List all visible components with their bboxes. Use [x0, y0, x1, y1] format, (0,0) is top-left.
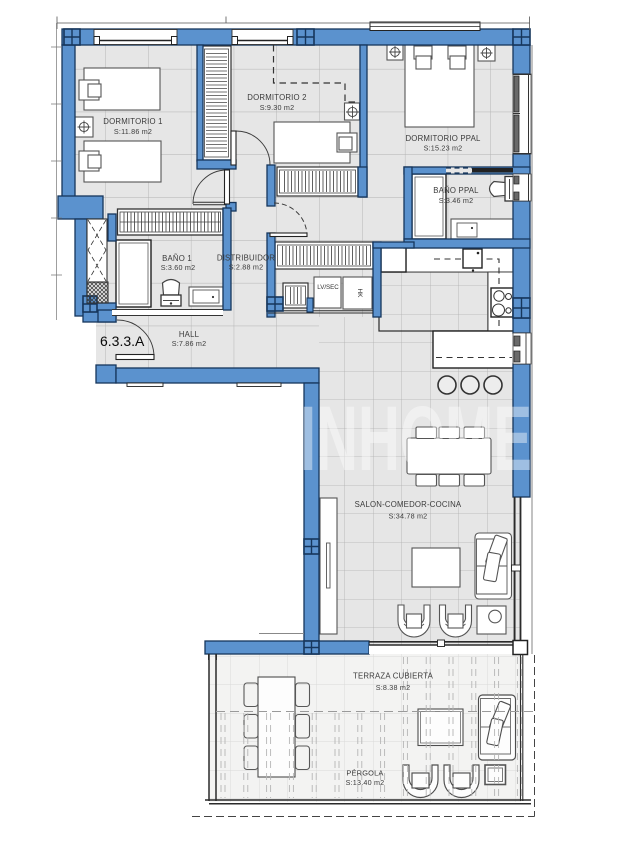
svg-text:S:15.23 m2: S:15.23 m2	[424, 144, 463, 153]
svg-text:HK: HK	[356, 288, 363, 298]
svg-text:BAÑO 1: BAÑO 1	[162, 254, 192, 263]
svg-text:SALON-COMEDOR-COCINA: SALON-COMEDOR-COCINA	[355, 500, 462, 509]
svg-text:BAÑO PPAL: BAÑO PPAL	[433, 186, 479, 195]
svg-text:LV/SEC: LV/SEC	[317, 284, 339, 291]
svg-text:S:8.38 m2: S:8.38 m2	[376, 683, 411, 692]
svg-text:INHOME: INHOME	[300, 388, 532, 490]
svg-text:DISTRIBUIDOR: DISTRIBUIDOR	[217, 254, 275, 263]
svg-text:S:7.86 m2: S:7.86 m2	[172, 339, 207, 348]
svg-text:S:3.60 m2: S:3.60 m2	[161, 263, 196, 272]
svg-text:HALL: HALL	[179, 330, 200, 339]
svg-text:S:3.46 m2: S:3.46 m2	[439, 196, 474, 205]
svg-text:S:13.40 m2: S:13.40 m2	[346, 778, 385, 787]
svg-text:TERRAZA CUBIERTA: TERRAZA CUBIERTA	[353, 672, 434, 681]
svg-text:DORMITORIO 2: DORMITORIO 2	[247, 93, 306, 102]
svg-text:DORMITORIO PPAL: DORMITORIO PPAL	[405, 134, 481, 143]
svg-text:DORMITORIO 1: DORMITORIO 1	[103, 117, 162, 126]
svg-text:S:2.88 m2: S:2.88 m2	[229, 263, 264, 272]
svg-text:S:34.78 m2: S:34.78 m2	[389, 512, 428, 521]
svg-text:6.3.3.A: 6.3.3.A	[100, 333, 145, 349]
svg-text:S:9.30 m2: S:9.30 m2	[260, 103, 295, 112]
svg-text:S:11.86 m2: S:11.86 m2	[114, 127, 152, 136]
svg-text:PÉRGOLA: PÉRGOLA	[346, 769, 383, 778]
